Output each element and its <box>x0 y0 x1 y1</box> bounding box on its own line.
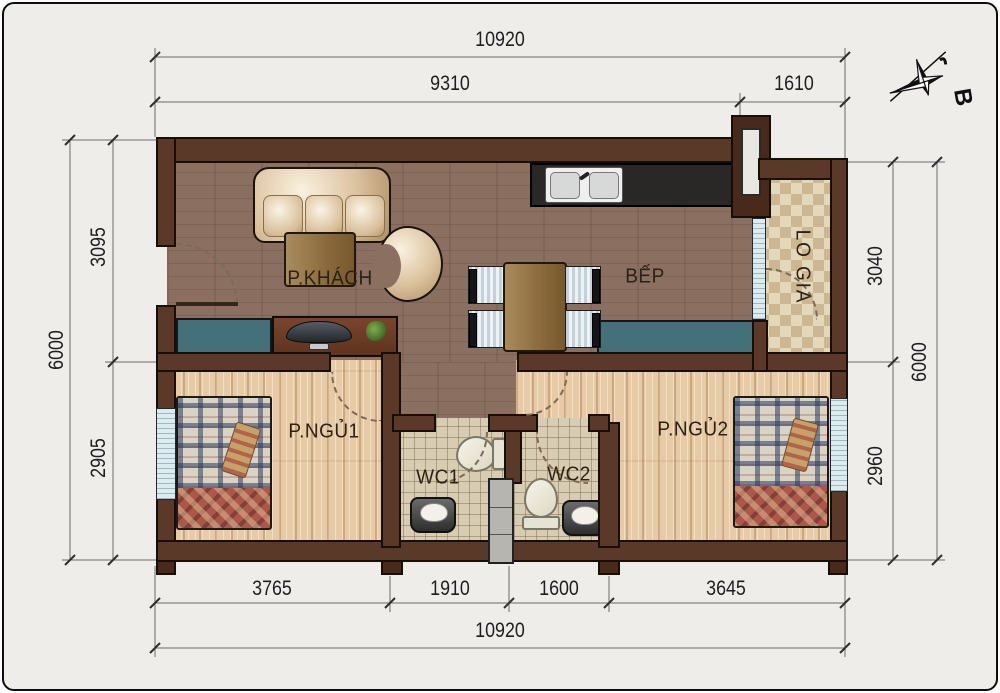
loggia-label: LO GIA <box>791 230 814 305</box>
wall-bedroom1-top <box>156 352 331 372</box>
wall-wc1-jamb-left <box>392 414 436 432</box>
dining-chair <box>468 266 504 304</box>
wc1-label: WC1 <box>416 467 460 490</box>
wall-top <box>156 137 768 163</box>
dim-right-seg2: 2960 <box>864 446 888 486</box>
bed-bedroom2 <box>733 396 829 528</box>
wall-wc-divider <box>504 430 522 484</box>
dim-top-total: 10920 <box>475 28 525 52</box>
bedroom2-label: P.NGỦ2 <box>657 419 728 442</box>
dining-table <box>503 262 567 352</box>
wall-bedroom2-top <box>517 352 848 372</box>
bedroom2-window <box>830 398 848 492</box>
loggia-glass-door <box>752 218 766 320</box>
tv <box>286 321 352 343</box>
tv-stand <box>309 343 329 350</box>
pillar <box>381 560 403 575</box>
bed-bedroom1 <box>176 396 272 530</box>
dim-bottom-seg2: 1910 <box>430 577 470 601</box>
dim-left-seg2: 2905 <box>87 438 111 478</box>
kitchen-sink <box>545 167 623 203</box>
wc2-label: WC2 <box>547 464 591 487</box>
kitchen-label: BẾP <box>625 266 664 289</box>
bedroom1-label: P.NGỦ1 <box>288 421 359 444</box>
wc2-toilet-tank <box>522 516 560 530</box>
dining-chair <box>565 310 601 348</box>
dining-chair <box>565 266 601 304</box>
wall-wc2-bedroom2 <box>598 422 620 548</box>
pillows <box>178 488 270 530</box>
dim-left-seg1: 3095 <box>87 227 111 267</box>
dim-right-total: 6000 <box>908 342 932 382</box>
dining-chair <box>468 310 504 348</box>
living-room-label: P.KHÁCH <box>287 268 372 291</box>
wardrobe-left <box>176 318 272 356</box>
services-shaft <box>488 478 514 564</box>
floor-plan-canvas: P.KHÁCH BẾP LO GIA P.NGỦ1 P.NGỦ2 WC1 WC2… <box>0 0 1000 693</box>
bedroom1-window <box>156 408 176 500</box>
dim-bottom-seg4: 3645 <box>706 577 746 601</box>
pillar <box>828 560 848 575</box>
wall-bedroom1-wc1 <box>381 352 401 548</box>
dim-bottom-seg3: 1600 <box>539 577 579 601</box>
wall-wc2-jamb-right <box>588 414 610 432</box>
pillar <box>598 560 620 575</box>
dim-top-seg2: 1610 <box>774 72 814 96</box>
entry-door-leaf <box>176 302 238 306</box>
pillows <box>735 486 827 528</box>
dim-left-total: 6000 <box>45 330 69 370</box>
pillar <box>156 560 176 575</box>
dim-top-seg1: 9310 <box>430 72 470 96</box>
wc1-basin <box>410 497 456 533</box>
dim-bottom-total: 10920 <box>475 619 525 643</box>
dim-bottom-seg1: 3765 <box>252 577 292 601</box>
dim-right-seg1: 3040 <box>864 246 888 286</box>
wall-left-upper <box>156 137 176 247</box>
wall-loggia-stub <box>752 320 768 372</box>
